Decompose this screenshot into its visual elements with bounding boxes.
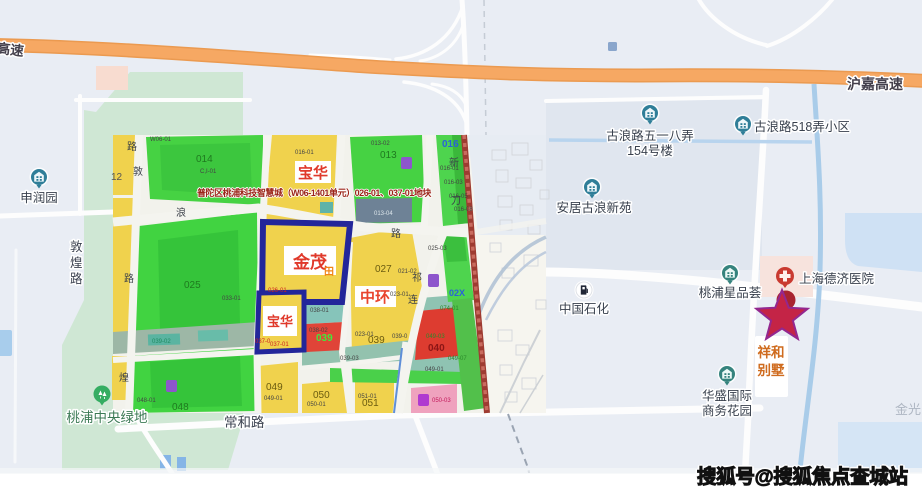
svg-text:037-01: 037-01 <box>270 342 289 348</box>
svg-text:014: 014 <box>196 154 213 165</box>
svg-text:027: 027 <box>375 264 392 275</box>
svg-text:025-03: 025-03 <box>428 246 447 252</box>
svg-text:路: 路 <box>70 271 83 286</box>
svg-text:023-01: 023-01 <box>355 332 374 338</box>
svg-text:074-01: 074-01 <box>440 306 459 312</box>
svg-text:039-02: 039-02 <box>152 339 171 345</box>
svg-text:上海德济医院: 上海德济医院 <box>799 271 875 286</box>
svg-text:古浪路518弄小区: 古浪路518弄小区 <box>754 119 850 134</box>
svg-text:050-03: 050-03 <box>432 398 451 404</box>
svg-text:051-01: 051-01 <box>358 394 377 400</box>
svg-text:刀: 刀 <box>451 196 461 207</box>
svg-text:048: 048 <box>172 402 189 413</box>
svg-text:048-01: 048-01 <box>137 398 156 404</box>
svg-text:华盛国际: 华盛国际 <box>702 388 752 403</box>
svg-text:016-03: 016-03 <box>444 180 463 186</box>
svg-text:中环: 中环 <box>360 288 390 306</box>
svg-text:013-04: 013-04 <box>374 211 393 217</box>
svg-text:049-01: 049-01 <box>264 396 283 402</box>
svg-text:金茂: 金茂 <box>292 252 327 272</box>
svg-text:12: 12 <box>111 172 123 183</box>
svg-text:申润园: 申润园 <box>20 191 58 205</box>
svg-text:桃浦星品荟: 桃浦星品荟 <box>699 285 762 300</box>
svg-text:常和路: 常和路 <box>224 415 265 430</box>
svg-text:路: 路 <box>391 227 401 240</box>
svg-text:商务花园: 商务花园 <box>702 403 752 418</box>
svg-text:煌: 煌 <box>119 371 129 384</box>
svg-text:038-01: 038-01 <box>310 308 329 314</box>
svg-text:别墅: 别墅 <box>757 363 786 378</box>
svg-text:013: 013 <box>380 150 397 161</box>
svg-text:037-0: 037-0 <box>255 339 271 345</box>
svg-text:浪: 浪 <box>176 206 186 219</box>
svg-text:154号楼: 154号楼 <box>627 143 673 158</box>
svg-text:路: 路 <box>124 272 134 285</box>
svg-text:026-01: 026-01 <box>268 288 287 294</box>
svg-text:016-08: 016-08 <box>454 207 473 213</box>
svg-text:049-07: 049-07 <box>448 356 467 362</box>
svg-text:040: 040 <box>428 343 445 354</box>
svg-text:田: 田 <box>324 266 334 278</box>
svg-text:049-01: 049-01 <box>425 367 444 373</box>
svg-text:中国石化: 中国石化 <box>559 301 610 316</box>
svg-text:敦: 敦 <box>133 165 143 178</box>
svg-text:C,I-01: C,I-01 <box>200 169 217 175</box>
svg-text:039-0: 039-0 <box>392 334 408 340</box>
svg-text:050-01: 050-01 <box>307 402 326 408</box>
svg-text:煌: 煌 <box>70 256 83 270</box>
svg-text:金光: 金光 <box>895 402 921 417</box>
svg-text:016-01: 016-01 <box>295 150 314 156</box>
svg-text:敦: 敦 <box>70 239 83 254</box>
svg-text:W06-01: W06-01 <box>150 137 172 143</box>
svg-text:049: 049 <box>266 382 283 393</box>
svg-text:连: 连 <box>408 293 418 306</box>
svg-text:沪嘉高速: 沪嘉高速 <box>847 76 903 92</box>
svg-text:013-02: 013-02 <box>371 141 390 147</box>
svg-text:02X: 02X <box>449 288 465 298</box>
svg-text:038-02: 038-02 <box>309 328 328 334</box>
svg-text:016: 016 <box>442 139 459 150</box>
svg-text:普陀区桃浦科技智慧城（W06-1401单元）026-01、0: 普陀区桃浦科技智慧城（W06-1401单元）026-01、037-01地块 <box>197 187 432 198</box>
svg-text:023-01: 023-01 <box>390 292 409 298</box>
svg-text:033-01: 033-01 <box>222 296 241 302</box>
svg-text:025: 025 <box>184 280 201 291</box>
svg-text:安居古浪新苑: 安居古浪新苑 <box>556 200 632 215</box>
svg-text:宝华: 宝华 <box>267 314 293 329</box>
svg-text:祥和: 祥和 <box>758 344 785 360</box>
svg-text:桃浦中央绿地: 桃浦中央绿地 <box>67 410 148 425</box>
svg-text:宝华: 宝华 <box>298 164 328 182</box>
svg-text:049-03: 049-03 <box>426 334 445 340</box>
svg-text:039: 039 <box>316 333 333 344</box>
svg-text:祁: 祁 <box>412 271 422 284</box>
svg-text:古浪路五一八弄: 古浪路五一八弄 <box>606 128 694 143</box>
svg-text:路: 路 <box>127 140 137 153</box>
svg-text:039-03: 039-03 <box>340 356 359 362</box>
svg-text:新: 新 <box>449 156 459 169</box>
svg-text:050: 050 <box>313 390 330 401</box>
